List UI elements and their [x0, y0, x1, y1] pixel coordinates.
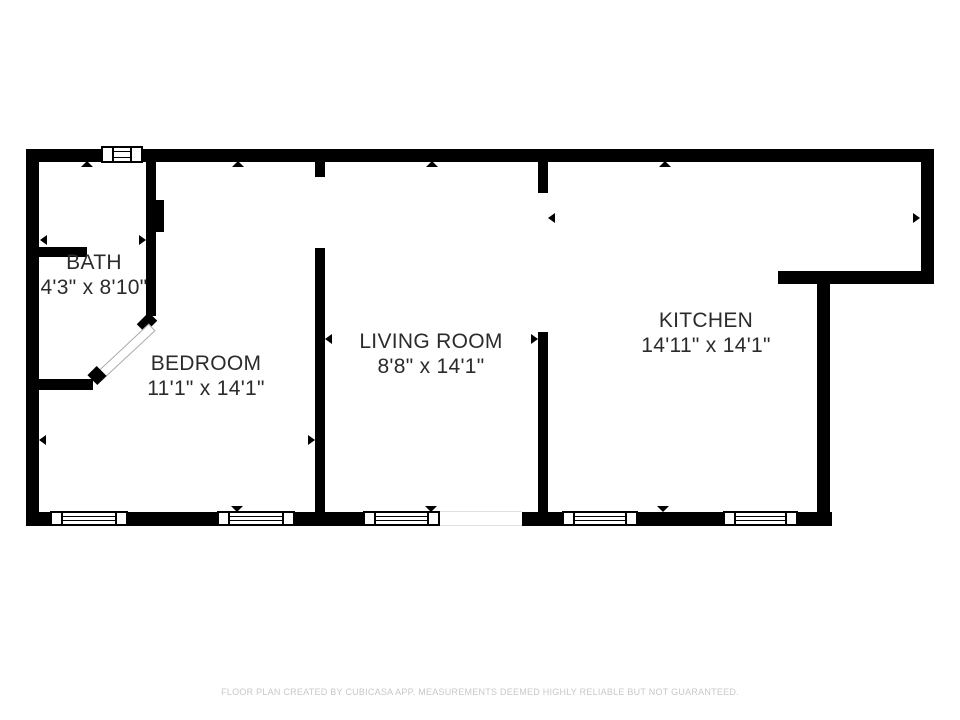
- opening-marker-icon: [426, 161, 438, 167]
- window-glass: [114, 151, 130, 158]
- window-frame: [115, 513, 126, 524]
- opening-marker-icon: [657, 506, 669, 512]
- wall-living-kitchen: [538, 332, 548, 512]
- room-label-kitchen: KITCHEN 14'11" x 14'1": [596, 308, 816, 358]
- measure-arrow-icon: [531, 334, 538, 344]
- window-glass: [575, 516, 625, 521]
- window-frame: [725, 513, 736, 524]
- window-frame: [103, 148, 114, 161]
- window-glass: [376, 516, 427, 521]
- window-glass: [736, 516, 785, 521]
- opening-marker-icon: [232, 161, 244, 167]
- measure-arrow-icon: [139, 235, 146, 245]
- room-name: BATH: [14, 250, 174, 275]
- window-icon: [723, 511, 798, 526]
- window-icon: [363, 511, 440, 526]
- wall-living-kitchen-stub: [538, 162, 548, 193]
- floor-plan: BATH 4'3" x 8'10" BEDROOM 11'1" x 14'1" …: [0, 0, 960, 720]
- window-frame: [282, 513, 293, 524]
- wall-bottom-segment: [26, 512, 50, 526]
- window-glass: [63, 516, 115, 521]
- room-name: KITCHEN: [596, 308, 816, 333]
- measure-arrow-icon: [39, 435, 46, 445]
- room-dims: 14'11" x 14'1": [596, 333, 816, 358]
- measure-arrow-icon: [913, 213, 920, 223]
- opening-marker-icon: [659, 161, 671, 167]
- window-icon: [101, 146, 143, 163]
- opening-marker-icon: [231, 506, 243, 512]
- window-frame: [785, 513, 796, 524]
- wall-bottom-segment: [798, 512, 832, 526]
- wall-opening-threshold: [440, 511, 522, 526]
- window-icon: [217, 511, 295, 526]
- window-icon: [50, 511, 128, 526]
- window-glass: [230, 516, 282, 521]
- window-frame: [219, 513, 230, 524]
- room-label-living-room: LIVING ROOM 8'8" x 14'1": [331, 329, 531, 379]
- window-icon: [562, 511, 638, 526]
- wall-kitchen-notch-horizontal: [778, 271, 934, 284]
- room-name: BEDROOM: [116, 351, 296, 376]
- window-frame: [625, 513, 636, 524]
- wall-top: [26, 149, 934, 162]
- wall-bottom-segment: [522, 512, 562, 526]
- wall-bottom-segment: [128, 512, 217, 526]
- window-frame: [130, 148, 141, 161]
- room-name: LIVING ROOM: [331, 329, 531, 354]
- window-frame: [427, 513, 438, 524]
- room-dims: 8'8" x 14'1": [331, 354, 531, 379]
- wall-bedroom-living: [315, 248, 325, 512]
- measure-arrow-icon: [308, 435, 315, 445]
- measure-arrow-icon: [548, 213, 555, 223]
- opening-marker-icon: [425, 506, 437, 512]
- room-dims: 11'1" x 14'1": [116, 376, 296, 401]
- wall-bottom-segment: [295, 512, 363, 526]
- room-dims: 4'3" x 8'10": [14, 275, 174, 300]
- footer-disclaimer: FLOOR PLAN CREATED BY CUBICASA APP. MEAS…: [0, 687, 960, 697]
- opening-marker-icon: [81, 161, 93, 167]
- wall-bath-lower-stub: [39, 379, 93, 390]
- measure-arrow-icon: [40, 235, 47, 245]
- window-frame: [564, 513, 575, 524]
- wall-right-upper: [921, 149, 934, 284]
- room-label-bath: BATH 4'3" x 8'10": [14, 250, 174, 300]
- room-label-bedroom: BEDROOM 11'1" x 14'1": [116, 351, 296, 401]
- window-frame: [365, 513, 376, 524]
- window-frame: [52, 513, 63, 524]
- wall-left: [26, 149, 39, 526]
- wall-bedroom-living-stub: [315, 162, 325, 177]
- wall-bottom-segment: [638, 512, 723, 526]
- wall-bath-divider-bump: [156, 200, 164, 232]
- wall-right-lower: [817, 284, 830, 526]
